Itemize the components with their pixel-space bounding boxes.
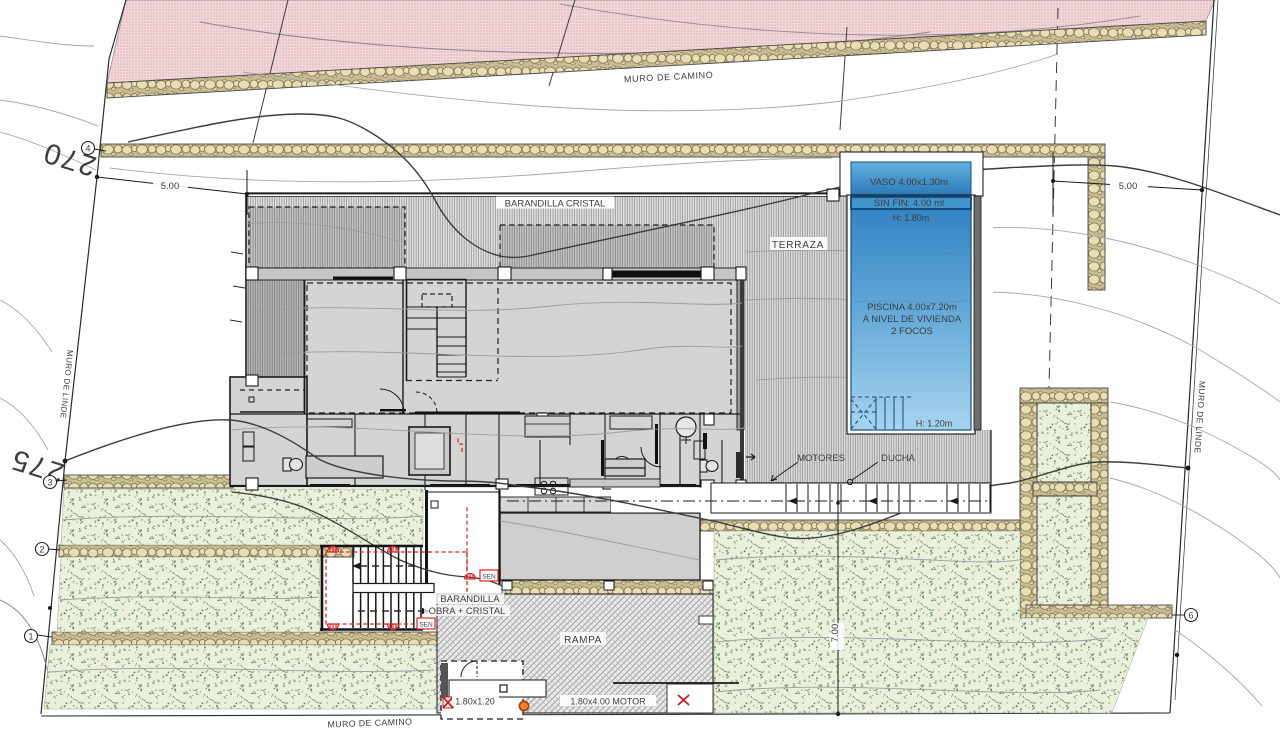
svg-text:BARANDILLA CRISTAL: BARANDILLA CRISTAL — [505, 199, 606, 210]
svg-text:1: 1 — [28, 632, 33, 642]
svg-text:2 FOCOS: 2 FOCOS — [891, 326, 933, 337]
svg-text:H: 1.80m: H: 1.80m — [893, 213, 930, 223]
svg-text:BARANDILLA: BARANDILLA — [440, 594, 500, 605]
svg-text:5.00: 5.00 — [161, 181, 180, 192]
svg-text:2: 2 — [39, 545, 44, 555]
svg-text:1.80x1.20: 1.80x1.20 — [455, 697, 495, 707]
svg-text:H: 1.20m: H: 1.20m — [916, 419, 953, 429]
svg-text:4: 4 — [85, 144, 90, 154]
svg-text:7.00: 7.00 — [830, 624, 841, 643]
svg-text:5.00: 5.00 — [1119, 181, 1138, 192]
svg-text:DUCHA: DUCHA — [881, 453, 915, 464]
svg-text:SEN: SEN — [482, 574, 496, 581]
svg-text:A NIVEL DE VIVIENDA: A NIVEL DE VIVIENDA — [863, 314, 962, 325]
svg-text:SEN: SEN — [419, 622, 433, 629]
svg-text:RAMPA: RAMPA — [564, 635, 602, 646]
svg-text:1.80x4.00 MOTOR: 1.80x4.00 MOTOR — [570, 697, 646, 707]
svg-text:OBRA + CRISTAL: OBRA + CRISTAL — [429, 606, 506, 617]
svg-text:SIN FIN: 4.00 ml: SIN FIN: 4.00 ml — [874, 198, 944, 209]
svg-text:3: 3 — [47, 478, 52, 488]
svg-text:PISCINA 4.00x7.20m: PISCINA 4.00x7.20m — [867, 302, 957, 313]
svg-text:MOTORES: MOTORES — [797, 453, 845, 464]
svg-text:VASO 4.00x1.30m: VASO 4.00x1.30m — [870, 177, 948, 188]
svg-text:6: 6 — [1188, 611, 1193, 621]
svg-text:TERRAZA: TERRAZA — [772, 240, 824, 251]
